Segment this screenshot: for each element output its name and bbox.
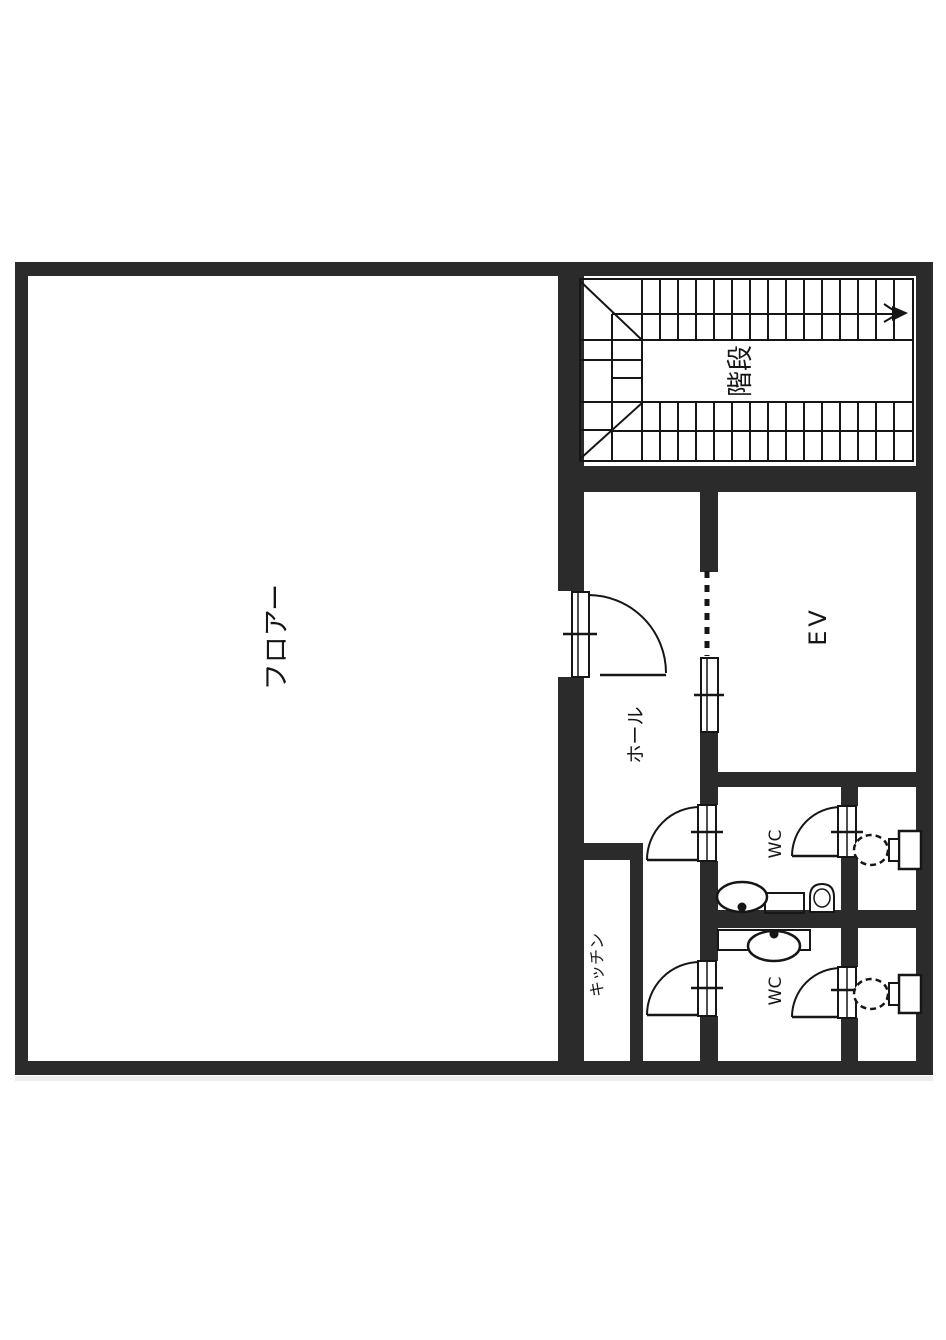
room-label-floor: フロアー xyxy=(262,584,293,690)
room-label-wc-upper: WC xyxy=(766,830,786,859)
outer-wall-top xyxy=(15,262,933,276)
sink-upper-faucet xyxy=(738,903,747,912)
room-label-wc-lower: WC xyxy=(766,977,786,1006)
door-wc-lower-toilet xyxy=(792,967,863,1018)
lower-compartment-wall-a xyxy=(841,928,858,967)
divider-wall-lower xyxy=(558,677,584,1062)
outer-wall-bottom xyxy=(15,1061,933,1075)
floor-plan-page: フロアー 階段 ホール EV WC WC キッチン xyxy=(0,0,946,1340)
door-wc-upper-toilet xyxy=(792,806,863,857)
hall-ev-wall-2 xyxy=(700,730,718,805)
toilet-upper-tank xyxy=(899,831,921,869)
upper-compartment-wall-b xyxy=(841,858,858,910)
sink-lower-faucet xyxy=(770,930,779,939)
floor-plan-drawing: フロアー 階段 ホール EV WC WC キッチン xyxy=(0,0,946,1340)
room-label-kitchen: キッチン xyxy=(588,933,607,997)
wc-divider-wall xyxy=(700,910,916,928)
stair-winder-landing xyxy=(580,279,642,461)
hall-ev-wall-4 xyxy=(700,1016,718,1062)
sink-lower xyxy=(718,930,810,962)
toilet-upper-connector xyxy=(889,839,899,861)
toilet-lower-tank xyxy=(899,975,921,1013)
lower-compartment-wall-b xyxy=(841,1018,858,1062)
door-floor-hall xyxy=(563,592,666,677)
door-hall-wc-lower xyxy=(647,961,723,1016)
toilet-upper-bowl xyxy=(854,835,888,865)
hand-basin-upper xyxy=(810,884,834,912)
stair-walk-line xyxy=(612,304,913,431)
door-elevator xyxy=(694,571,724,732)
sink-upper xyxy=(717,882,804,913)
door-hall-wc-upper xyxy=(647,805,723,861)
room-label-hall: ホール xyxy=(625,706,647,763)
scan-shadow xyxy=(15,1076,933,1081)
stair-treads-upper xyxy=(642,279,894,340)
toilet-lower-connector xyxy=(889,983,899,1005)
outer-wall-left xyxy=(15,262,28,1074)
stair-arrow-head xyxy=(892,306,908,321)
outer-wall-right xyxy=(916,262,933,1075)
toilet-upper xyxy=(854,831,921,869)
room-label-elevator: EV xyxy=(804,606,832,646)
stairs-bottom-wall xyxy=(558,466,916,492)
ev-bottom-wall xyxy=(700,772,916,787)
kitchen-right-wall xyxy=(630,843,643,1061)
hall-ev-wall-1 xyxy=(700,492,718,572)
room-label-stairs: 階段 xyxy=(726,345,756,397)
upper-compartment-wall-a xyxy=(841,787,858,806)
toilet-lower xyxy=(854,975,921,1013)
toilet-lower-bowl xyxy=(854,979,888,1009)
